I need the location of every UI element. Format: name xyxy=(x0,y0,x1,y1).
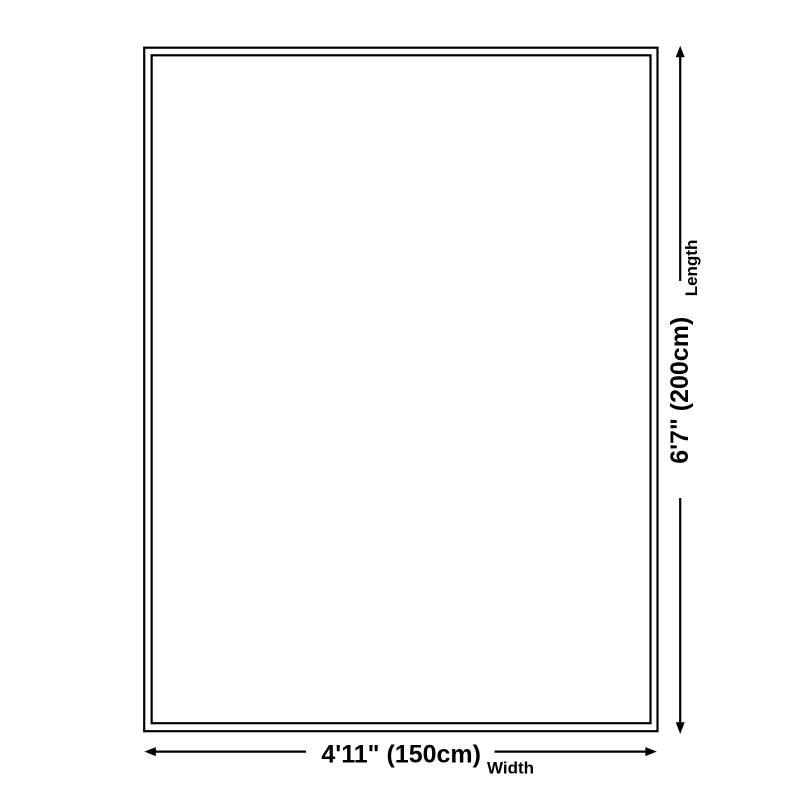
svg-text:6'7" (200cm): 6'7" (200cm) xyxy=(666,317,694,464)
svg-text:Width: Width xyxy=(487,759,534,778)
svg-text:4'11" (150cm): 4'11" (150cm) xyxy=(321,740,481,768)
svg-text:Length: Length xyxy=(682,240,701,297)
